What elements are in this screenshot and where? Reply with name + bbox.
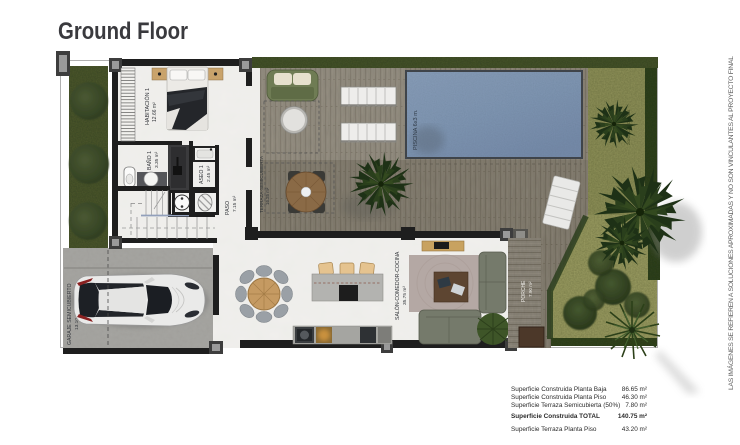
svg-text:12.66 m²: 12.66 m² [152,102,158,122]
svg-text:2.45 m²: 2.45 m² [206,165,212,182]
svg-text:SALÓN-COMEDOR-COCINA: SALÓN-COMEDOR-COCINA [394,251,401,320]
svg-text:86.65 m²: 86.65 m² [622,386,647,393]
svg-text:Superficie Construida Planta P: Superficie Construida Planta Piso [511,394,607,401]
svg-text:BAÑO 1: BAÑO 1 [146,151,153,170]
svg-text:46.30 m²: 46.30 m² [622,394,647,401]
svg-text:16.25 m²: 16.25 m² [265,187,270,205]
svg-text:Superficie Construida TOTAL: Superficie Construida TOTAL [511,413,600,420]
svg-text:Superficie Terraza Semicubiert: Superficie Terraza Semicubierta (50%) [511,402,620,409]
svg-text:LAS IMÁGENES SE REFIEREN A SOL: LAS IMÁGENES SE REFIEREN A SOLUCIONES AP… [726,56,735,390]
svg-text:TERRAZA-SEMICUBIERTA: TERRAZA-SEMICUBIERTA [259,155,264,213]
svg-text:35.75 m²: 35.75 m² [402,286,408,305]
svg-text:PISCINA 6x3 m.: PISCINA 6x3 m. [413,109,419,150]
svg-text:3.35 m²: 3.35 m² [154,151,160,168]
svg-text:Superficie Construida Planta B: Superficie Construida Planta Baja [511,386,607,393]
svg-text:Superficie Terraza Planta Piso: Superficie Terraza Planta Piso [511,426,597,433]
svg-text:HABITACIÓN 1: HABITACIÓN 1 [144,88,151,125]
svg-text:PASO: PASO [225,201,231,215]
svg-text:GARAJE SEMICUBIERTO: GARAJE SEMICUBIERTO [67,284,73,346]
svg-text:140.75 m²: 140.75 m² [618,413,647,420]
svg-text:7.80 m²: 7.80 m² [625,402,647,409]
svg-text:7.90 m²: 7.90 m² [528,281,533,297]
svg-text:7.15 m²: 7.15 m² [232,195,238,212]
svg-text:PORCHE: PORCHE [521,280,527,302]
svg-text:ASEO 1: ASEO 1 [199,165,205,184]
svg-text:Ground Floor: Ground Floor [58,18,188,45]
svg-text:43.20 m²: 43.20 m² [622,426,647,433]
